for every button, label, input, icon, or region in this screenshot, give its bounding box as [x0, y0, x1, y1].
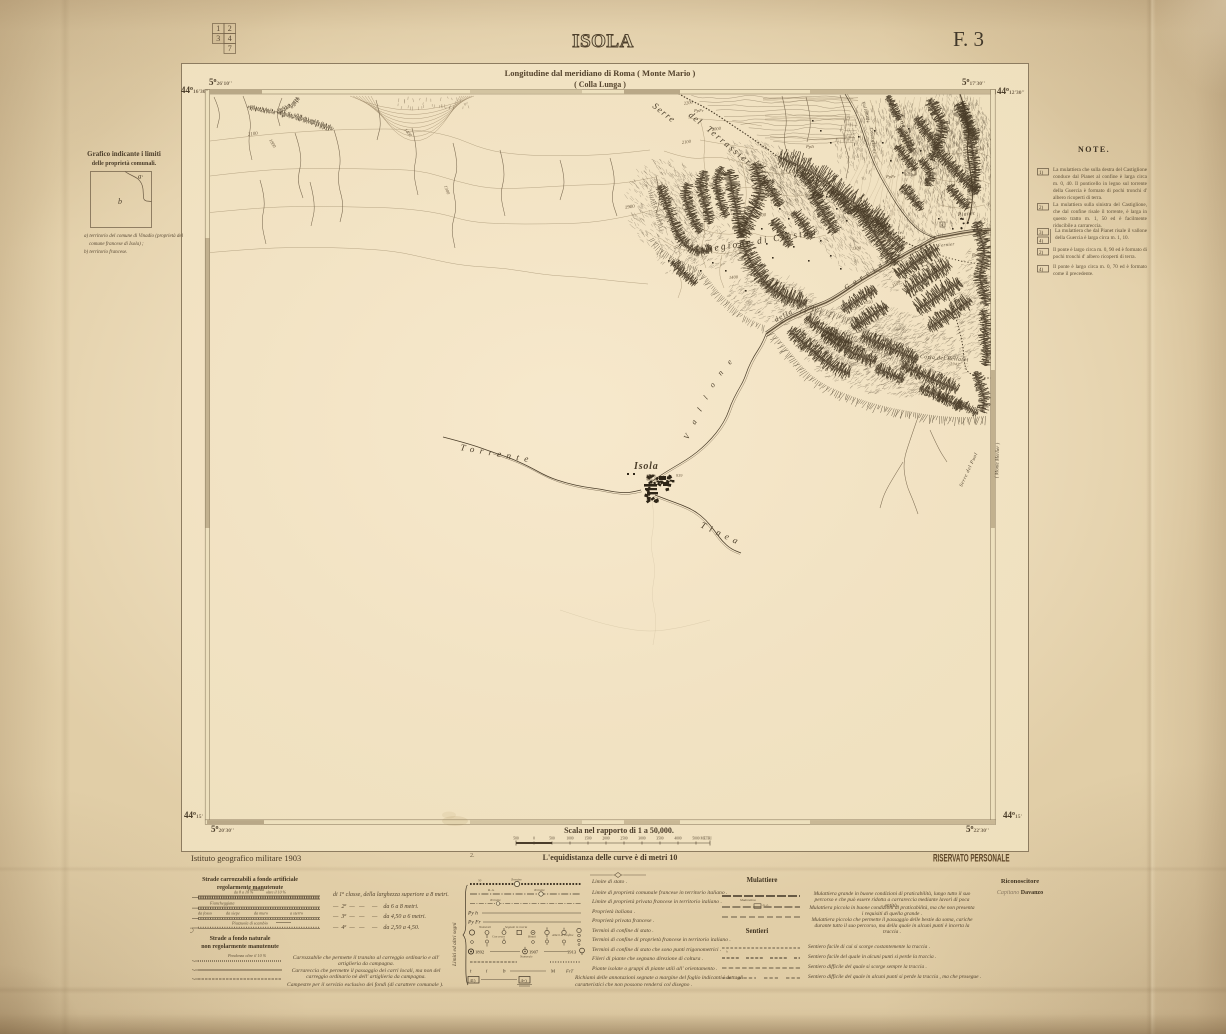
svg-text:1942: 1942: [950, 361, 960, 367]
svg-text:3000: 3000: [638, 837, 645, 841]
svg-text:Isola: Isola: [633, 461, 659, 472]
svg-text:Py h: Py h: [467, 911, 478, 917]
svg-text:1800: 1800: [268, 138, 277, 149]
svg-text:Termine: Termine: [511, 878, 522, 882]
svg-text:2100: 2100: [681, 139, 691, 145]
svg-text:1400: 1400: [729, 274, 739, 280]
svg-text:2): 2): [1039, 206, 1044, 211]
svg-text:h: h: [726, 950, 728, 954]
svg-text:3500: 3500: [656, 837, 663, 841]
svg-text:V: V: [682, 429, 694, 441]
svg-text:Serre del Puol: Serre del Puol: [959, 452, 979, 488]
svg-text:Piazzuola di scambio: Piazzuola di scambio: [231, 921, 268, 926]
svg-text:a·: a·: [138, 173, 144, 181]
svg-text:oltre il 10 %: oltre il 10 %: [266, 890, 287, 895]
svg-text:Vallone: Vallone: [861, 101, 870, 119]
svg-text:Binati: Binati: [528, 935, 536, 939]
svg-text:4): 4): [1039, 268, 1044, 273]
svg-text:Con croce: Con croce: [492, 935, 506, 939]
svg-text:4: 4: [941, 223, 943, 227]
svg-text:Serre: Serre: [651, 101, 678, 125]
svg-text:Termine: Termine: [534, 888, 545, 892]
svg-text:1500: 1500: [584, 837, 591, 841]
svg-text:5000 METRI: 5000 METRI: [692, 837, 712, 841]
svg-text:e: e: [725, 355, 736, 366]
svg-text:n: n: [716, 366, 728, 378]
svg-text:2): 2): [1039, 251, 1044, 256]
svg-text:Regione di Ciastan: Regione di Ciastan: [705, 227, 819, 255]
svg-text:500: 500: [513, 837, 519, 841]
svg-text:t: t: [470, 970, 472, 975]
svg-text:i: i: [486, 970, 488, 975]
svg-text:da muro: da muro: [254, 911, 268, 916]
svg-text:23: 23: [985, 231, 989, 235]
svg-text:FrT: FrT: [565, 969, 574, 974]
svg-text:b: b: [118, 197, 122, 206]
svg-text:1300: 1300: [443, 185, 451, 196]
svg-text:PpIt: PpIt: [805, 144, 815, 149]
svg-text:Numerati: Numerati: [478, 925, 491, 929]
svg-text:Alberi di confine: Alberi di confine: [551, 933, 574, 937]
svg-text:4000: 4000: [674, 837, 681, 841]
svg-text:1913: 1913: [567, 950, 577, 955]
svg-text:Numerale: Numerale: [519, 955, 533, 959]
svg-text:939: 939: [676, 473, 683, 478]
svg-text:Tinea: Tinea: [699, 520, 744, 548]
svg-text:500: 500: [549, 837, 555, 841]
svg-text:l: l: [695, 403, 706, 413]
svg-text:4+): 4+): [521, 978, 528, 983]
svg-text:Fiancheggiata: Fiancheggiata: [209, 901, 234, 906]
svg-text:Termine: Termine: [490, 898, 501, 902]
svg-text:4): 4): [1039, 240, 1044, 245]
svg-text:PpFr: PpFr: [885, 174, 896, 179]
svg-text:da siepe: da siepe: [226, 911, 240, 916]
svg-text:l: l: [701, 391, 712, 401]
svg-text:o: o: [708, 378, 720, 390]
svg-text:( Monte Merlier ): ( Monte Merlier ): [995, 442, 1001, 478]
svg-text:Torrente: Torrente: [460, 442, 535, 465]
svg-text:Madonnina: Madonnina: [739, 898, 756, 902]
svg-text:da fosso: da fosso: [198, 911, 212, 916]
svg-text:1000: 1000: [566, 837, 573, 841]
svg-text:PpFr: PpFr: [965, 200, 976, 205]
svg-text:1900: 1900: [625, 205, 636, 211]
svg-text:2000: 2000: [602, 837, 609, 841]
svg-text:Terrassier: Terrassier: [705, 124, 755, 168]
svg-text:Fernier: Fernier: [937, 241, 955, 248]
svg-text:PpFr: PpFr: [971, 252, 982, 257]
svg-text:1400: 1400: [403, 127, 413, 138]
svg-text:50: 50: [478, 878, 482, 882]
svg-text:R. A.: R. A.: [487, 888, 495, 892]
svg-text:Costa del Bellaret: Costa del Bellaret: [920, 354, 969, 363]
svg-text:Segnale in roccia: Segnale in roccia: [505, 925, 528, 929]
svg-text:a: a: [689, 415, 701, 426]
svg-text:da 8 a 10 %: da 8 a 10 %: [234, 890, 254, 895]
svg-text:1892: 1892: [475, 950, 485, 955]
svg-text:2200: 2200: [683, 99, 694, 106]
svg-text:Pianet: Pianet: [957, 211, 976, 218]
svg-text:12: 12: [648, 476, 652, 480]
svg-text:a sterro: a sterro: [290, 911, 303, 916]
svg-text:M: M: [551, 969, 555, 974]
svg-text:G a r c i a: G a r c i a: [843, 260, 885, 291]
svg-text:m. 2.: m. 2.: [763, 903, 769, 907]
svg-text:761: 761: [906, 171, 912, 175]
svg-text:2500: 2500: [620, 837, 627, 841]
svg-text:3): 3): [1039, 231, 1044, 236]
svg-text:1): 1): [1039, 171, 1044, 176]
svg-text:41): 41): [470, 978, 476, 983]
svg-text:di: di: [865, 117, 871, 123]
svg-text:0: 0: [533, 837, 535, 841]
svg-text:b: b: [503, 970, 506, 975]
